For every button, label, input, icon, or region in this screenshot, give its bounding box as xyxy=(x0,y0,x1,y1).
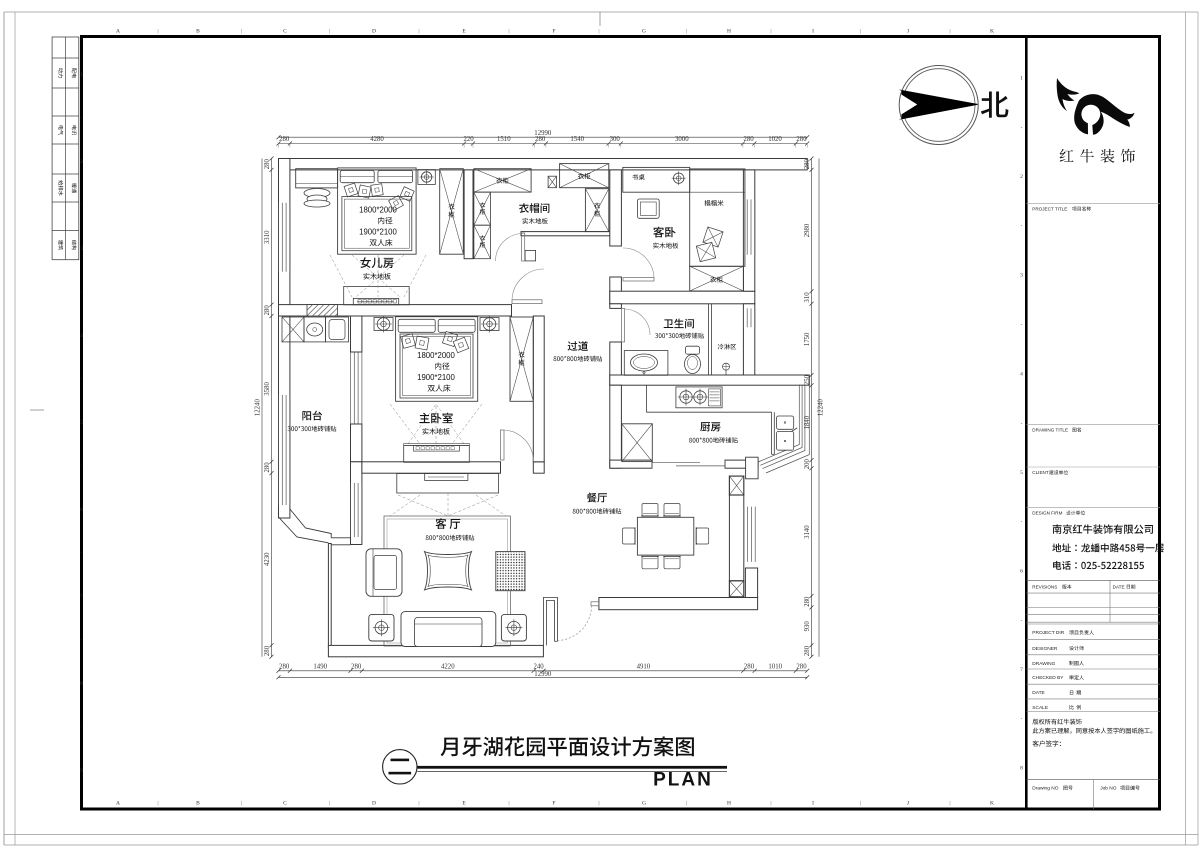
svg-text:F: F xyxy=(552,29,555,35)
svg-text:H: H xyxy=(727,29,731,35)
svg-text:|: | xyxy=(418,30,419,35)
svg-text:1: 1 xyxy=(80,72,83,78)
svg-text:200: 200 xyxy=(804,459,811,470)
svg-text:12990: 12990 xyxy=(534,671,552,678)
svg-text:|: | xyxy=(949,802,950,807)
svg-text:A: A xyxy=(116,29,120,35)
svg-text:DESIGN FIRM: DESIGN FIRM xyxy=(1032,510,1062,515)
svg-text:930: 930 xyxy=(804,621,811,632)
svg-text:280: 280 xyxy=(744,664,755,671)
svg-text:250: 250 xyxy=(804,374,811,385)
svg-text:|: | xyxy=(598,802,599,807)
svg-text:1010: 1010 xyxy=(768,664,782,671)
svg-text:5: 5 xyxy=(80,420,83,426)
svg-text:7: 7 xyxy=(1020,667,1023,673)
svg-text:280: 280 xyxy=(264,305,271,316)
svg-text:|: | xyxy=(770,30,771,35)
svg-text:310: 310 xyxy=(804,292,811,303)
svg-text:280: 280 xyxy=(804,596,811,607)
svg-text:2: 2 xyxy=(80,159,83,165)
svg-text:|: | xyxy=(418,802,419,807)
svg-text:2980: 2980 xyxy=(804,223,811,237)
svg-text:|: | xyxy=(157,30,158,35)
svg-text:1840: 1840 xyxy=(804,415,811,429)
svg-text:280: 280 xyxy=(264,645,271,656)
svg-text:D: D xyxy=(372,29,376,35)
svg-text:G: G xyxy=(642,29,646,35)
svg-text:7: 7 xyxy=(80,594,83,600)
svg-text:PROJECT DIR: PROJECT DIR xyxy=(1032,630,1064,636)
svg-text:280: 280 xyxy=(264,159,271,170)
svg-text:DRAWING: DRAWING xyxy=(1032,661,1055,667)
svg-text:|: | xyxy=(241,30,242,35)
svg-text:1750: 1750 xyxy=(804,332,811,346)
svg-text:CHECKED BY: CHECKED BY xyxy=(1032,675,1064,681)
svg-text:|: | xyxy=(949,30,950,35)
svg-text:I: I xyxy=(812,801,814,807)
svg-text:F: F xyxy=(552,801,555,807)
svg-text:B: B xyxy=(196,801,200,807)
svg-text:5: 5 xyxy=(1020,470,1023,476)
svg-text:2: 2 xyxy=(1020,174,1023,180)
svg-text:4: 4 xyxy=(1020,371,1023,377)
svg-text:K: K xyxy=(990,29,994,35)
svg-text:3140: 3140 xyxy=(804,525,811,539)
svg-text:|: | xyxy=(157,802,158,807)
svg-text:8: 8 xyxy=(80,681,83,687)
svg-text:C: C xyxy=(283,801,287,807)
svg-text:8: 8 xyxy=(1020,766,1023,772)
svg-text:B: B xyxy=(196,29,200,35)
svg-text:H: H xyxy=(727,801,731,807)
svg-text:280: 280 xyxy=(279,664,290,671)
svg-text:|: | xyxy=(686,802,687,807)
svg-text:1: 1 xyxy=(1020,76,1023,82)
svg-text:A: A xyxy=(116,801,120,807)
svg-text:280: 280 xyxy=(796,664,807,671)
svg-text:280: 280 xyxy=(804,645,811,656)
svg-text:3: 3 xyxy=(80,246,83,252)
svg-text:|: | xyxy=(329,30,330,35)
svg-text:|: | xyxy=(860,30,861,35)
svg-text:280: 280 xyxy=(351,664,362,671)
svg-text:240: 240 xyxy=(533,664,544,671)
svg-text:REVISIONS: REVISIONS xyxy=(1032,584,1057,589)
svg-text:|: | xyxy=(598,30,599,35)
svg-text:DATE: DATE xyxy=(1113,584,1125,589)
svg-text:6: 6 xyxy=(1020,569,1023,575)
svg-text:C: C xyxy=(283,29,287,35)
svg-text:1800*2000: 1800*2000 xyxy=(417,351,455,360)
svg-text:12240: 12240 xyxy=(818,399,825,417)
svg-text:1800*2000: 1800*2000 xyxy=(359,206,397,215)
svg-text:|: | xyxy=(770,802,771,807)
svg-text:|: | xyxy=(686,30,687,35)
svg-text:CLIENT: CLIENT xyxy=(1032,470,1049,475)
svg-text:PROJECT TITLE: PROJECT TITLE xyxy=(1032,206,1067,211)
svg-text:Drawing NO: Drawing NO xyxy=(1032,786,1058,792)
svg-text:280: 280 xyxy=(804,159,811,170)
svg-text:|: | xyxy=(329,802,330,807)
svg-text:G: G xyxy=(642,801,646,807)
svg-text:1490: 1490 xyxy=(313,664,327,671)
svg-text:D: D xyxy=(372,801,376,807)
svg-text:4910: 4910 xyxy=(637,664,651,671)
svg-text:I: I xyxy=(812,29,814,35)
svg-text:4: 4 xyxy=(80,333,83,339)
svg-text:DESIGNER: DESIGNER xyxy=(1032,646,1058,652)
svg-text:4220: 4220 xyxy=(441,664,455,671)
svg-text:4230: 4230 xyxy=(264,552,271,566)
svg-text:3580: 3580 xyxy=(264,382,271,396)
svg-text:12990: 12990 xyxy=(534,130,552,137)
svg-text:|: | xyxy=(241,802,242,807)
svg-text:DRAWING TITLE: DRAWING TITLE xyxy=(1032,427,1068,432)
svg-text:Job NO: Job NO xyxy=(1100,786,1117,792)
svg-text:|: | xyxy=(508,30,509,35)
svg-text:280: 280 xyxy=(264,462,271,473)
svg-text:1900*2100: 1900*2100 xyxy=(359,228,397,237)
svg-text:6: 6 xyxy=(80,507,83,513)
svg-text:DATE: DATE xyxy=(1032,690,1044,696)
svg-text:1900*2100: 1900*2100 xyxy=(417,373,455,382)
svg-text:12240: 12240 xyxy=(255,399,262,417)
svg-text:9: 9 xyxy=(80,768,83,774)
svg-text:|: | xyxy=(508,802,509,807)
svg-text:PLAN: PLAN xyxy=(653,770,713,791)
svg-text:SCALE: SCALE xyxy=(1032,705,1048,711)
svg-text:3310: 3310 xyxy=(264,230,271,244)
svg-text:K: K xyxy=(990,801,994,807)
svg-text:3: 3 xyxy=(1020,273,1023,279)
svg-text:|: | xyxy=(860,802,861,807)
